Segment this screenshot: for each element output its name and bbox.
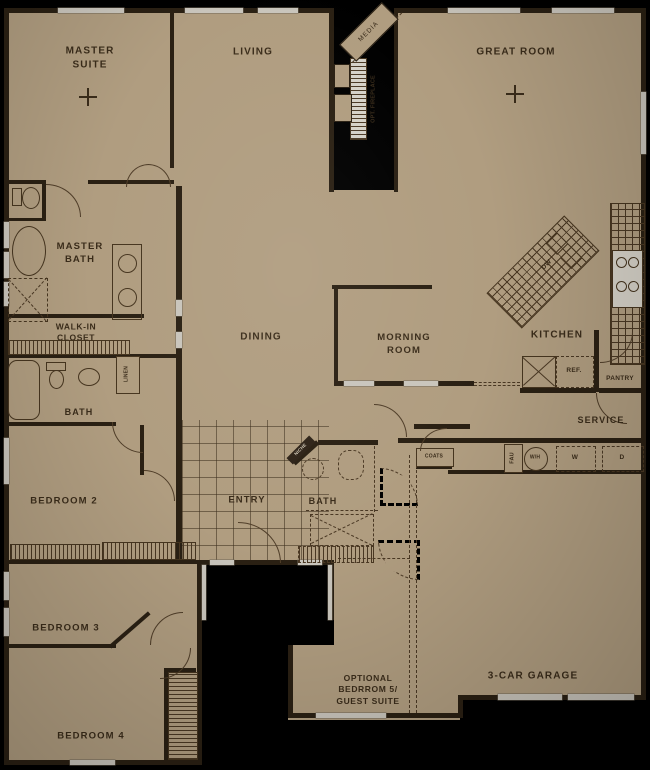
toilet-icon xyxy=(12,188,22,206)
shower-icon xyxy=(8,278,48,322)
floor-plan: MEDIA OPT. FIREPLACE LINEN NICHE xyxy=(0,0,650,770)
toilet-icon xyxy=(22,187,40,209)
pantry-label: PANTRY xyxy=(606,376,634,383)
window xyxy=(641,92,646,154)
dishwasher-label: DW xyxy=(541,259,554,272)
optional-wall-dashed xyxy=(409,455,417,713)
window xyxy=(552,8,614,13)
art-niche xyxy=(176,332,182,348)
wall-segment xyxy=(4,422,116,426)
chimney-block xyxy=(334,94,352,122)
wall-dashed xyxy=(374,446,378,512)
wall-segment xyxy=(288,645,293,718)
art-niche xyxy=(176,300,182,316)
wall-segment xyxy=(520,388,596,393)
window xyxy=(448,8,520,13)
room-label-garage: 3-CAR GARAGE xyxy=(488,669,578,683)
window xyxy=(4,252,9,278)
wall-segment xyxy=(170,8,174,168)
optional-wall-dashed xyxy=(474,382,520,386)
wall-segment xyxy=(176,186,182,562)
wall-segment xyxy=(329,8,334,192)
media-label: MEDIA xyxy=(358,21,381,44)
room-label-entry: ENTRY xyxy=(228,495,265,508)
water-heater-label: W/H xyxy=(530,456,540,461)
window xyxy=(58,8,124,13)
room-label-master-bath: MASTER BATH xyxy=(57,241,104,267)
washer-label: W xyxy=(572,455,578,462)
chimney-block xyxy=(334,64,350,88)
entry-sidelight xyxy=(210,560,234,565)
closet-rod xyxy=(168,672,198,760)
wall-segment xyxy=(332,285,432,289)
closet-rod xyxy=(102,542,196,560)
room-label-bath-hall: BATH xyxy=(65,406,94,418)
wall-dashed xyxy=(338,558,410,562)
toilet-icon-dashed xyxy=(338,450,364,480)
window xyxy=(258,8,298,13)
room-label-optional-bedroom-5: OPTIONAL BEDRROM 5/ GUEST SUITE xyxy=(336,673,399,707)
refrigerator-label: REF. xyxy=(566,368,581,375)
room-label-living: LIVING xyxy=(233,45,273,59)
wall-segment xyxy=(4,180,46,184)
room-label-bedroom-2: BEDROOM 2 xyxy=(30,496,97,509)
wall-segment xyxy=(334,285,338,385)
fau-label: FAU xyxy=(510,452,516,464)
room-label-morning-room: MORNING ROOM xyxy=(377,332,431,358)
wall-segment xyxy=(4,644,116,648)
room-label-bedroom-4: BEDROOM 4 xyxy=(57,731,124,744)
linen-label: LINEN xyxy=(125,366,130,382)
sink-icon xyxy=(118,288,137,307)
window xyxy=(344,381,374,386)
room-label-bedroom-3: BEDROOM 3 xyxy=(32,623,99,636)
window xyxy=(4,222,9,248)
cabinet-icon xyxy=(522,356,556,388)
room-label-master-suite: MASTER SUITE xyxy=(66,45,115,72)
room-label-service: SERVICE xyxy=(577,414,624,426)
wall-segment xyxy=(318,440,378,445)
porch-trim xyxy=(202,565,206,620)
bathtub-icon xyxy=(12,226,46,276)
toilet-icon xyxy=(49,370,64,389)
shower-icon-dashed xyxy=(310,514,374,546)
garage-door xyxy=(498,694,562,700)
room-label-great-room: GREAT ROOM xyxy=(476,45,555,59)
window xyxy=(185,8,243,13)
window xyxy=(70,760,115,765)
window xyxy=(4,438,9,484)
window xyxy=(404,381,438,386)
window xyxy=(316,713,386,718)
ceiling-fan-icon xyxy=(79,88,97,106)
ceiling-fan-icon xyxy=(506,85,524,103)
fireplace-icon xyxy=(350,58,367,140)
wall-segment xyxy=(4,560,198,564)
closet-rod xyxy=(10,544,100,560)
garage-door xyxy=(568,694,634,700)
wall-segment xyxy=(394,8,398,192)
wall-segment xyxy=(4,218,46,221)
opt-fireplace-label: OPT. FIREPLACE xyxy=(371,75,377,123)
cooktop-icon xyxy=(612,250,643,308)
dryer-label: D xyxy=(620,455,625,462)
coats-label: COATS xyxy=(425,455,443,460)
bathtub-icon xyxy=(8,360,40,420)
room-label-dining: DINING xyxy=(240,330,282,344)
sink-icon xyxy=(118,254,137,273)
room-label-walk-in-closet: WALK-IN CLOSET xyxy=(56,322,97,345)
sink-icon xyxy=(78,368,100,386)
window xyxy=(4,572,9,600)
porch-trim xyxy=(328,565,332,620)
window xyxy=(4,608,9,636)
sink-icon-dashed xyxy=(302,458,324,480)
room-label-bath-center: BATH xyxy=(309,495,338,507)
room-label-kitchen: KITCHEN xyxy=(531,328,583,342)
wall-segment xyxy=(594,330,599,392)
